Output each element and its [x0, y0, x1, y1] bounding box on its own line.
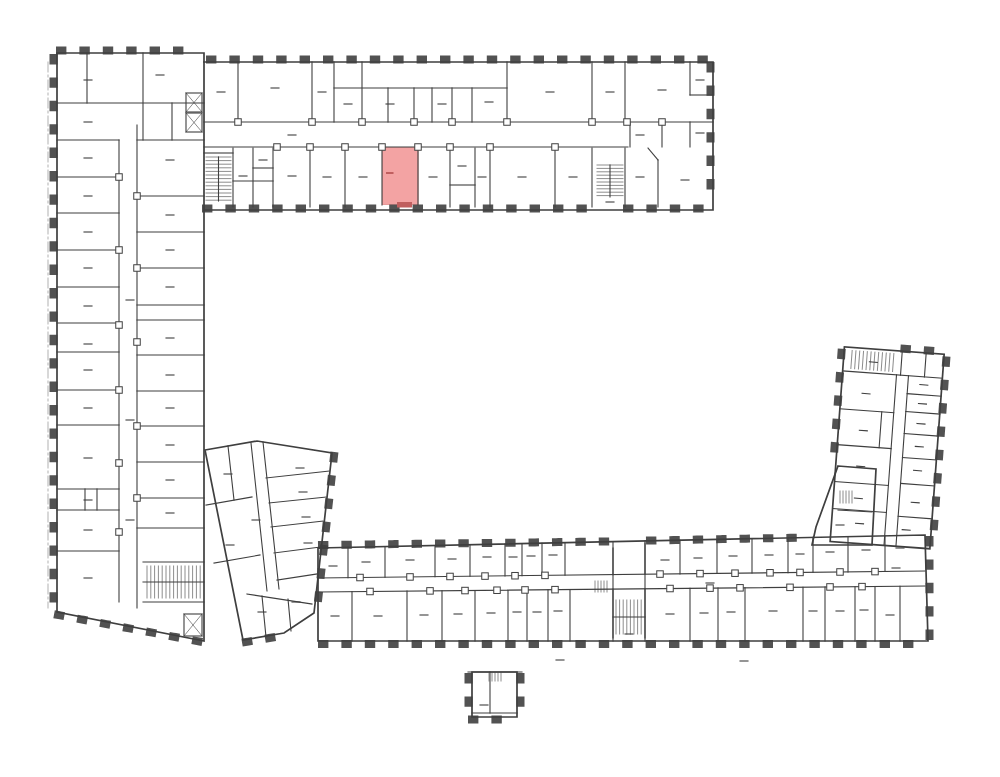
door-jamb — [116, 174, 123, 181]
door-jamb — [427, 588, 434, 595]
wall-segment — [247, 594, 312, 604]
wall-segment — [277, 574, 317, 580]
wall-segment — [269, 497, 326, 503]
stair-hatches — [147, 157, 852, 681]
stair-tread — [881, 353, 882, 371]
door-jamb — [624, 119, 631, 126]
stair-tread — [874, 352, 875, 370]
right-wing-partitions — [830, 347, 944, 549]
door-jamb — [407, 574, 414, 581]
wall-segment — [901, 483, 935, 485]
room-label-dash — [920, 385, 928, 386]
highlighted-room-group — [383, 148, 419, 205]
door-jamb — [342, 144, 349, 151]
highlighted-room-label-dash — [386, 172, 394, 174]
wall-segment — [251, 443, 267, 591]
door-jamb — [797, 569, 804, 576]
room-label-dash — [902, 530, 910, 531]
wall-segment — [262, 596, 266, 637]
wall-segment — [906, 412, 940, 414]
detached-annex-outline — [472, 672, 517, 717]
door-jamb — [116, 387, 123, 394]
stair-tread — [870, 352, 871, 370]
stair-tread — [855, 351, 856, 369]
room-label-dash — [859, 430, 867, 431]
wall-segment — [835, 482, 889, 486]
wall-segment — [318, 586, 925, 592]
door-jamb — [732, 570, 739, 577]
middle-tilted-block-outline — [205, 441, 332, 640]
door-jamb — [659, 119, 666, 126]
window-tick-run — [317, 456, 334, 610]
wall-segment — [924, 353, 926, 377]
wall-segment — [843, 371, 943, 378]
door-jamb — [309, 119, 316, 126]
window-tick-run — [904, 349, 944, 352]
door-jamb — [415, 144, 422, 151]
stair-tread — [889, 353, 890, 371]
highlighted-room-window-sill — [397, 202, 412, 208]
door-jamb — [357, 574, 364, 581]
door-jamb — [235, 119, 242, 126]
right-wing-annex-outline — [812, 466, 876, 545]
door-jamb — [787, 584, 794, 591]
door-jamb — [552, 586, 559, 593]
door-jamb — [447, 144, 454, 151]
door-jamb — [512, 572, 519, 579]
room-label-dash — [869, 362, 877, 363]
right-wing — [828, 344, 947, 549]
highlighted-room[interactable] — [383, 148, 419, 205]
stair-tread — [885, 353, 886, 371]
room-label-dash — [854, 498, 862, 499]
door-jamb — [379, 144, 386, 151]
door-jamb — [134, 423, 141, 430]
door-jamb — [522, 587, 529, 594]
wall-segment — [837, 445, 891, 449]
door-jamb — [462, 587, 469, 594]
room-label-dash — [862, 393, 870, 394]
window-tick-run — [58, 615, 202, 642]
door-jamb — [274, 144, 281, 151]
door-jamb — [134, 495, 141, 502]
room-label-dash — [918, 404, 926, 405]
right-wing-stair-hatch — [851, 351, 894, 372]
door-jamb — [667, 585, 674, 592]
wall-segment — [228, 446, 234, 500]
wall-segment — [214, 555, 260, 563]
top-wing-outline — [204, 62, 713, 210]
wall-segment — [907, 394, 941, 396]
door-jamb — [827, 584, 834, 591]
room-label-dash — [911, 502, 919, 503]
door-jamb — [482, 573, 489, 580]
door-jamb — [134, 265, 141, 272]
stair-tread — [893, 354, 894, 372]
door-jamb — [494, 587, 501, 594]
door-jamb — [767, 570, 774, 577]
stair-tread — [866, 352, 867, 370]
door-jamb — [411, 119, 418, 126]
left-wing-outline — [57, 53, 204, 641]
door-jamb — [367, 588, 374, 595]
room-label-dash — [914, 470, 922, 471]
door-jamb — [134, 193, 141, 200]
wall-segment — [896, 376, 909, 547]
window-tick-run — [933, 360, 946, 544]
door-jamb — [116, 460, 123, 467]
door-jamb — [116, 247, 123, 254]
door-jamb — [707, 585, 714, 592]
floor-plan-canvas — [0, 0, 1000, 777]
door-jamb — [487, 144, 494, 151]
door-jamb — [116, 529, 123, 536]
wall-segment — [879, 412, 882, 448]
door-jamb — [859, 583, 866, 590]
door-jamb — [552, 144, 559, 151]
wall-segment — [900, 351, 902, 375]
stair-tread — [851, 351, 852, 369]
door-jamb — [697, 570, 704, 577]
wall-segment — [898, 516, 932, 518]
wall-segment — [904, 434, 938, 436]
floor-plan-walls — [48, 51, 947, 720]
stair-tread — [877, 352, 878, 370]
door-jamb — [134, 339, 141, 346]
wall-segment — [902, 457, 936, 459]
door-jamb — [116, 322, 123, 329]
door-jamb — [657, 571, 664, 578]
room-label-dash — [856, 523, 864, 524]
door-jamb — [837, 569, 844, 576]
wall-segment — [288, 599, 291, 631]
door-jamb — [359, 119, 366, 126]
wall-segment — [884, 375, 897, 546]
door-jamb — [307, 144, 314, 151]
door-jamb — [737, 585, 744, 592]
elevator-shafts — [184, 93, 202, 636]
stair-tread — [858, 351, 859, 369]
wall-segment — [840, 409, 894, 413]
wall-segment — [271, 521, 323, 527]
stair-tread — [862, 351, 863, 369]
room-label-dash — [917, 423, 925, 424]
door-jamb — [504, 119, 511, 126]
door-jamb — [447, 573, 454, 580]
wall-segment — [266, 471, 329, 478]
door-jamb — [589, 119, 596, 126]
door-jambs — [116, 119, 879, 595]
window-ticks — [54, 51, 930, 720]
door-jamb — [872, 568, 879, 575]
room-label-dash — [857, 466, 865, 467]
floor-plan-svg — [0, 0, 1000, 777]
room-label-dash — [915, 446, 923, 447]
wall-segment — [263, 442, 279, 589]
wall-segment — [274, 547, 320, 553]
room-label-dashes — [84, 75, 904, 705]
wall-segment — [206, 497, 252, 505]
door-jamb — [449, 119, 456, 126]
door-jamb — [542, 572, 549, 579]
wall-segment — [648, 148, 658, 160]
